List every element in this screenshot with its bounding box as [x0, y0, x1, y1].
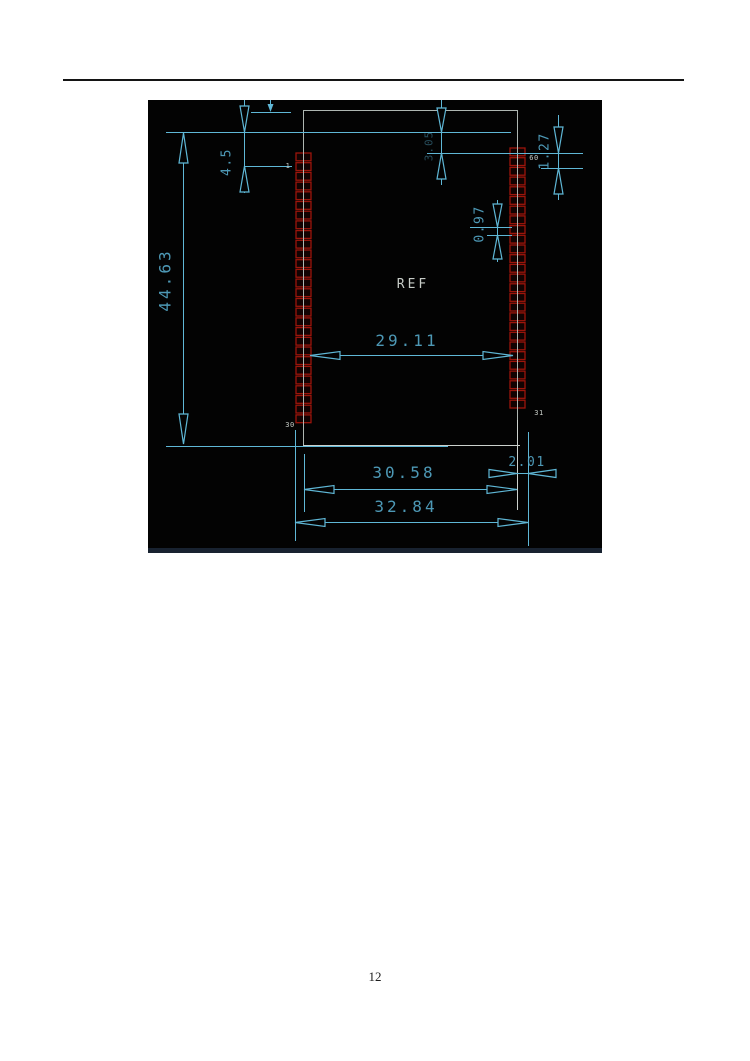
dim-total-width: 32.84: [374, 497, 437, 516]
dim-pad-width: 0.97: [473, 205, 488, 242]
dim-inner-span: 29.11: [375, 331, 438, 350]
dim-pin-pitch: 1.27: [538, 132, 553, 169]
pin-label-31: 31: [534, 409, 543, 417]
dim-pad-length: 2.01: [508, 455, 545, 470]
arrowheads: [179, 104, 563, 527]
dim-top-offset: 4.5: [220, 148, 235, 176]
pin-label-30: 30: [285, 421, 294, 429]
dim-total-height: 44.63: [156, 248, 175, 311]
header-rule: [63, 79, 684, 81]
cad-drawing: 44.63 4.5 3.05 1.27 0.97 29.11 30.58 32.…: [148, 100, 602, 553]
ref-label: REF: [397, 277, 429, 292]
cad-drawing-canvas: 44.63 4.5 3.05 1.27 0.97 29.11 30.58 32.…: [148, 100, 602, 553]
dim-outer-span: 30.58: [372, 463, 435, 482]
bitmap-bottom-strip: [148, 548, 602, 553]
pin-label-60: 60: [529, 154, 538, 162]
page-number: 12: [0, 969, 750, 985]
document-page: 44.63 4.5 3.05 1.27 0.97 29.11 30.58 32.…: [0, 0, 750, 1061]
dim-top-pad-offset: 3.05: [423, 131, 436, 162]
pin-label-1: 1: [286, 162, 291, 170]
